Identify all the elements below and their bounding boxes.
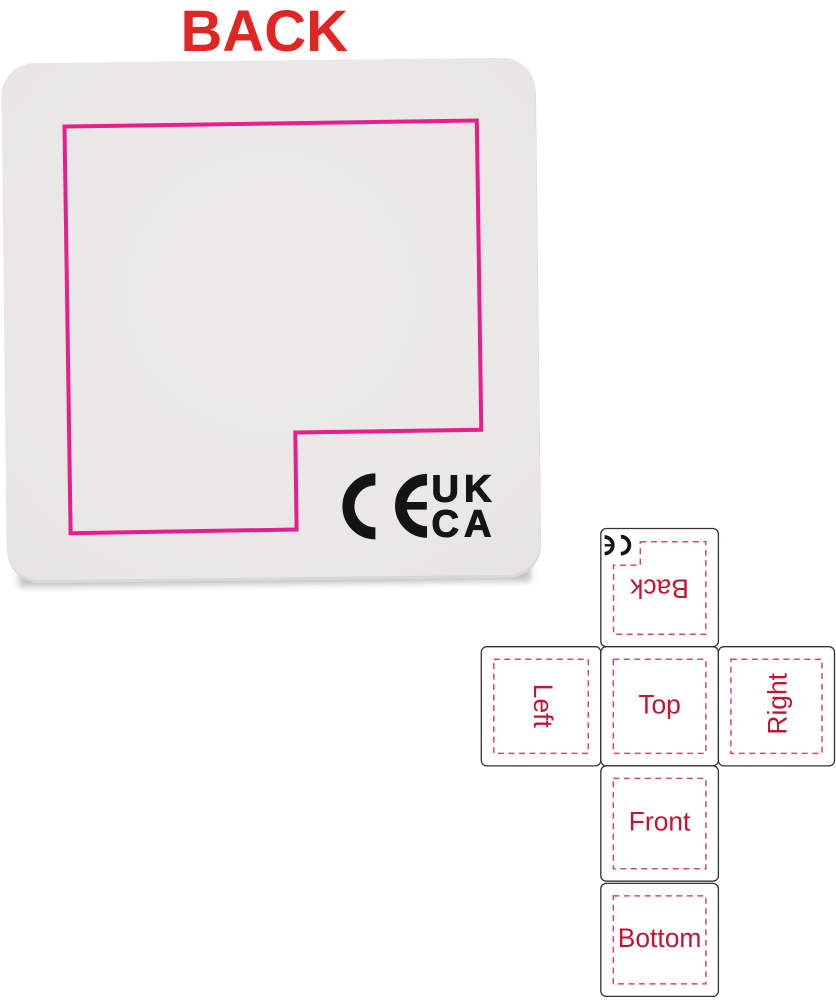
svg-text:BACK: BACK <box>181 0 349 64</box>
svg-text:Left: Left <box>528 684 558 729</box>
svg-text:Front: Front <box>629 807 691 837</box>
svg-text:CA: CA <box>432 504 497 546</box>
svg-text:Bottom: Bottom <box>618 923 702 953</box>
svg-text:Back: Back <box>629 574 688 604</box>
svg-text:Top: Top <box>638 689 681 719</box>
svg-text:Right: Right <box>763 672 793 734</box>
